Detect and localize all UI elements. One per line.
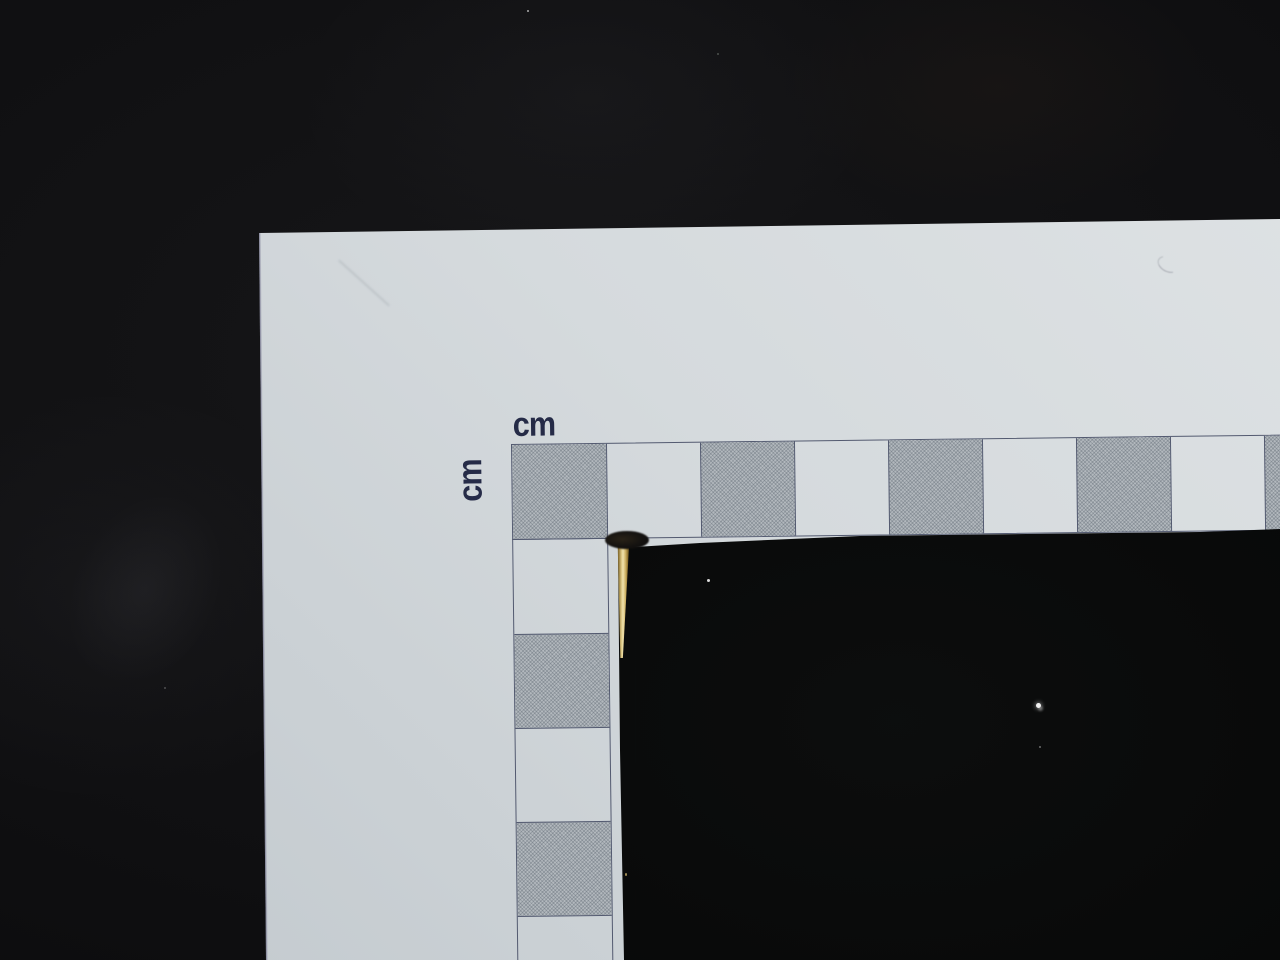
scale-square-white bbox=[606, 443, 701, 538]
dust-speck bbox=[625, 873, 627, 876]
scale-square-gray bbox=[514, 633, 609, 728]
faint-pencil-mark bbox=[1155, 253, 1181, 277]
scale-square-white bbox=[982, 438, 1077, 533]
dust-speck bbox=[164, 687, 166, 689]
dust-speck bbox=[707, 579, 710, 582]
dust-speck bbox=[717, 53, 719, 55]
cm-label-horizontal: cm bbox=[513, 406, 585, 443]
brass-pin-head bbox=[605, 531, 649, 549]
scale-square-gray bbox=[512, 444, 607, 539]
scale-square-white bbox=[513, 539, 608, 634]
scale-square-gray bbox=[1076, 437, 1171, 532]
scale-square-white bbox=[518, 915, 613, 960]
scale-square-gray bbox=[700, 442, 795, 537]
photo-scene: cm cm bbox=[0, 0, 1280, 960]
scale-square-gray bbox=[517, 821, 612, 916]
dust-speck bbox=[1039, 746, 1041, 748]
dust-speck bbox=[1036, 703, 1041, 708]
cm-label-vertical: cm bbox=[453, 456, 488, 505]
scale-square-gray bbox=[1264, 435, 1280, 530]
dust-speck bbox=[527, 10, 529, 12]
scale-square-white bbox=[515, 727, 610, 822]
faint-smudge bbox=[338, 260, 390, 307]
scale-square-white bbox=[1170, 436, 1265, 531]
scale-square-white bbox=[794, 440, 889, 535]
checker-column-vertical bbox=[512, 538, 614, 960]
scale-square-gray bbox=[888, 439, 983, 534]
checker-row-horizontal bbox=[511, 434, 1280, 540]
